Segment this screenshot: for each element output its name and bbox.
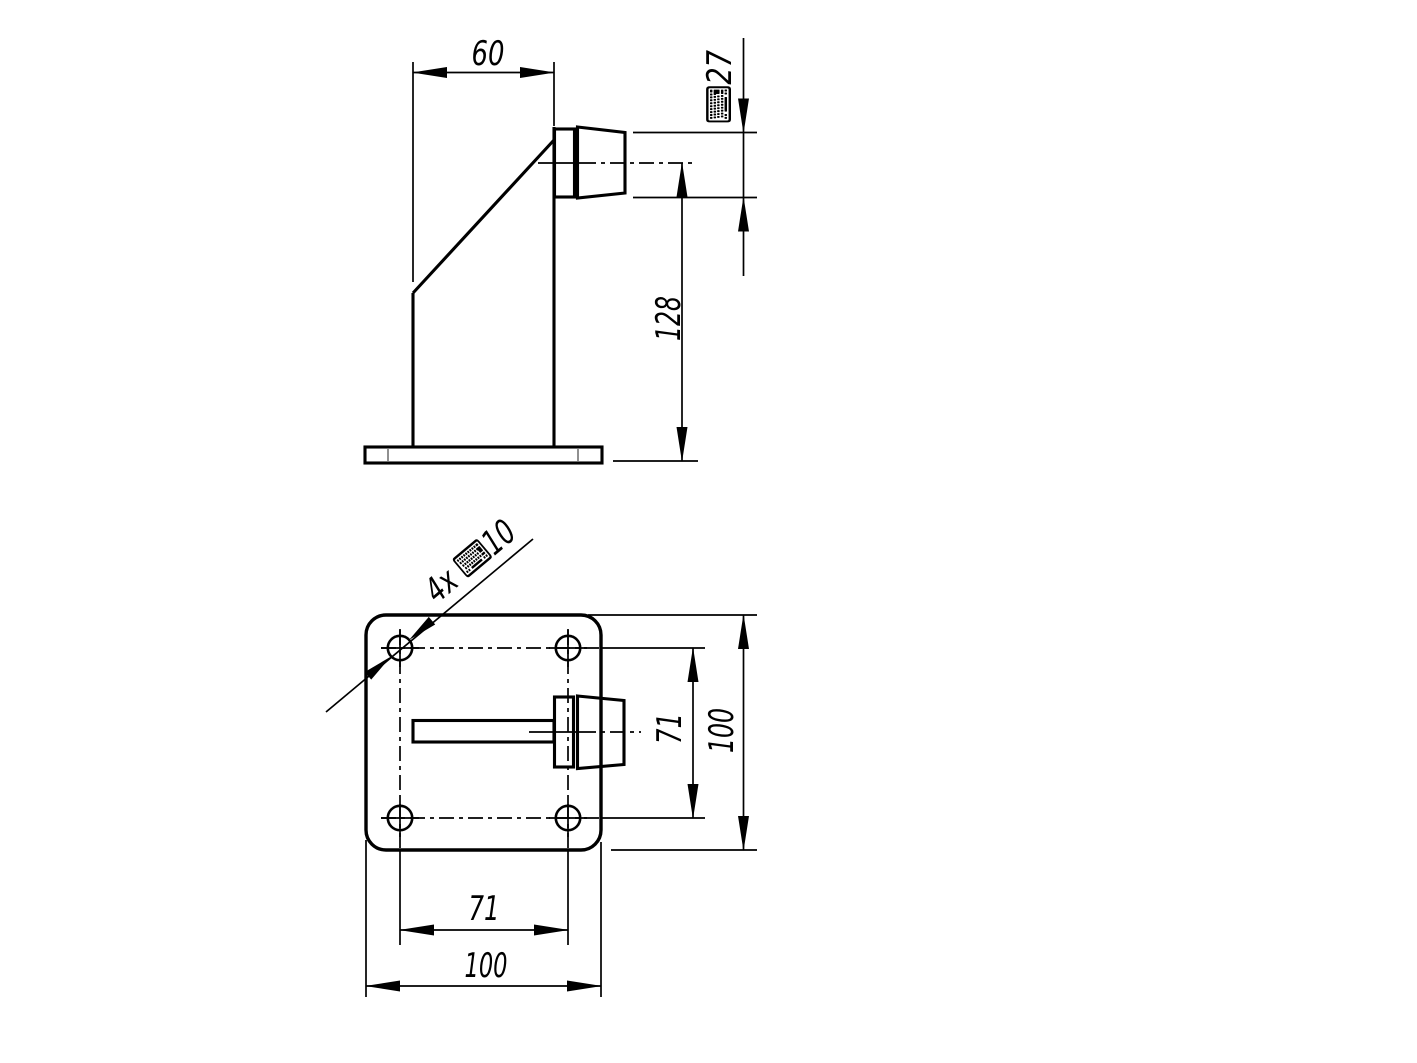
drawing-canvas: 60 ⌨27 128: [0, 0, 1417, 1063]
holes-leader-arrow-upper: [409, 617, 435, 640]
post-diagonal-brace: [413, 140, 554, 293]
plan-view: 4x ⌨10 71 100 71 100: [326, 512, 757, 997]
dim-label-hole-spacing-vertical: 71: [650, 713, 690, 744]
holes-callout-label: 4x ⌨10: [417, 512, 524, 611]
front-view: 60 ⌨27 128: [365, 34, 757, 463]
base-plate-side: [365, 447, 602, 463]
dim-label-hole-spacing-horizontal: 71: [469, 889, 500, 929]
dim-label-height: 128: [649, 296, 689, 341]
dim-label-plate-depth: 100: [702, 708, 742, 753]
dim-label-top-width: 60: [472, 34, 505, 74]
technical-drawing-page: 60 ⌨27 128: [0, 0, 1417, 1063]
dim-label-head-diameter: ⌨27: [700, 50, 740, 124]
holes-leader-arrow-lower: [365, 657, 391, 680]
dim-label-plate-width: 100: [465, 946, 508, 986]
